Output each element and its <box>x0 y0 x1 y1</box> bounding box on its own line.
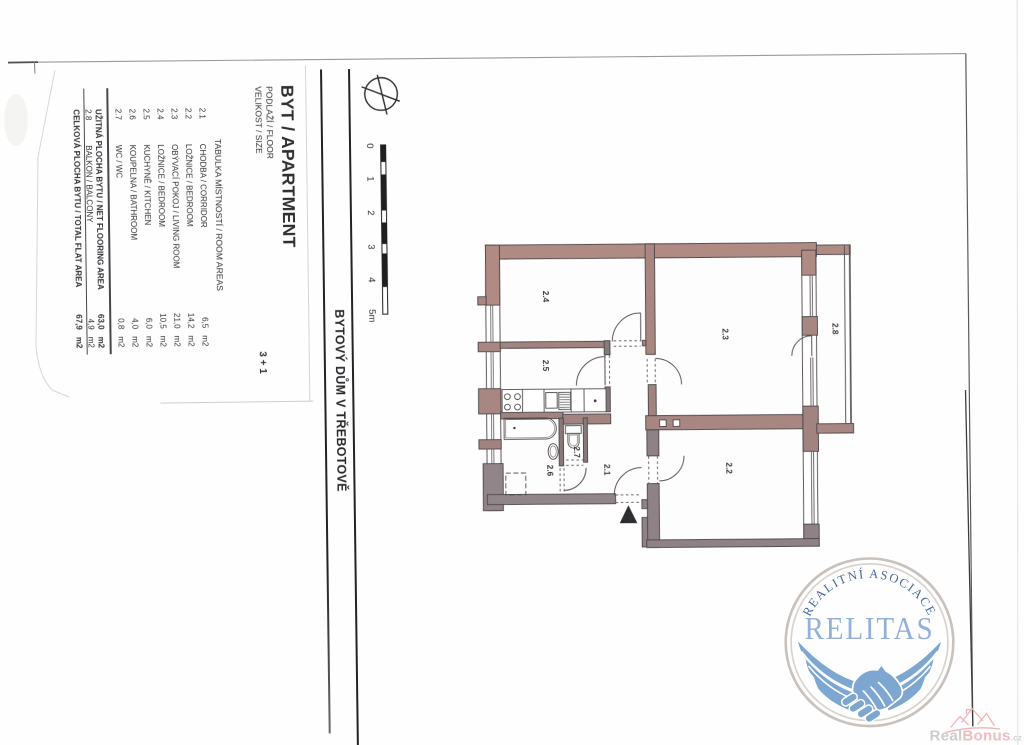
svg-text:RELITAS: RELITAS <box>805 610 935 646</box>
svg-text:RealBonus.cz: RealBonus.cz <box>930 728 1022 745</box>
